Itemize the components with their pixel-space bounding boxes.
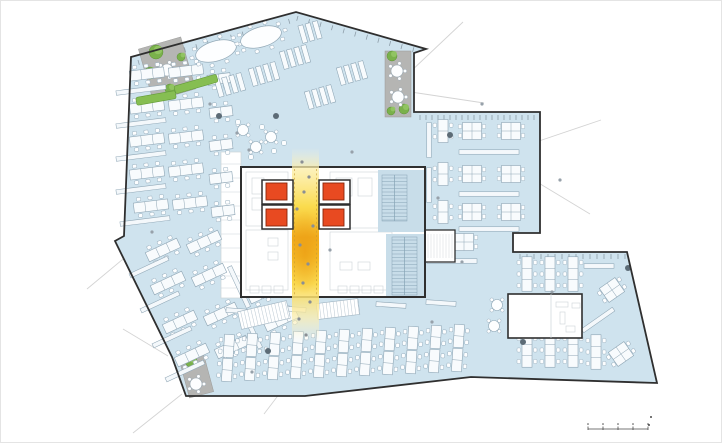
round-table <box>264 130 278 144</box>
cabinet <box>459 192 519 197</box>
plant-pot <box>520 339 526 345</box>
desk-cluster <box>497 123 525 140</box>
person <box>295 207 298 210</box>
round-table <box>249 140 263 154</box>
person <box>302 190 305 193</box>
plant-pot <box>265 348 271 354</box>
person <box>297 317 300 320</box>
annex <box>425 230 455 262</box>
person <box>208 102 211 105</box>
desk-cluster <box>458 123 486 140</box>
round-table <box>236 123 250 137</box>
person <box>430 320 433 323</box>
person <box>150 230 153 233</box>
elevator-car <box>266 209 287 226</box>
stair <box>382 175 407 221</box>
desk-cluster <box>458 166 486 183</box>
person <box>308 300 311 303</box>
elevator-car <box>323 209 344 226</box>
lounge-seat <box>236 120 241 125</box>
round-table <box>487 319 501 333</box>
atrium <box>289 148 321 342</box>
elevator-car <box>323 183 344 200</box>
cabinet <box>427 123 432 158</box>
person <box>436 196 439 199</box>
lounge-seat <box>260 125 265 130</box>
desk-bench <box>517 257 537 292</box>
floor-plan-svg <box>0 0 722 443</box>
desk-bench <box>586 335 606 370</box>
plant-pot <box>447 132 453 138</box>
person <box>247 148 250 151</box>
elevator-car <box>266 183 287 200</box>
person <box>298 243 301 246</box>
person <box>311 224 314 227</box>
round-table <box>490 298 504 312</box>
person <box>300 160 303 163</box>
person <box>306 262 309 265</box>
meeting-room <box>508 294 582 338</box>
person <box>301 281 304 284</box>
desk-cluster <box>497 204 525 221</box>
person <box>558 178 561 181</box>
desk-bench <box>540 257 560 292</box>
person <box>250 370 253 373</box>
person <box>350 150 353 153</box>
person <box>328 248 331 251</box>
desk-cluster <box>458 204 486 221</box>
person <box>480 102 483 105</box>
plant-pot <box>273 113 279 119</box>
person <box>304 333 307 336</box>
lounge-seat <box>282 141 287 146</box>
floor-plan-page <box>0 0 722 443</box>
person <box>460 260 463 263</box>
cabinet <box>459 150 519 155</box>
lounge-seat <box>249 155 254 160</box>
person <box>307 175 310 178</box>
desk-bench <box>563 257 583 292</box>
scale-bar <box>587 416 652 430</box>
plant-pot <box>216 113 222 119</box>
cabinet <box>427 168 432 203</box>
person <box>550 290 553 293</box>
person <box>235 131 238 134</box>
desk-cluster <box>497 166 525 183</box>
lounge-seat <box>272 149 277 154</box>
cabinet <box>459 227 519 232</box>
stair <box>392 237 417 295</box>
cabinet <box>584 264 614 269</box>
